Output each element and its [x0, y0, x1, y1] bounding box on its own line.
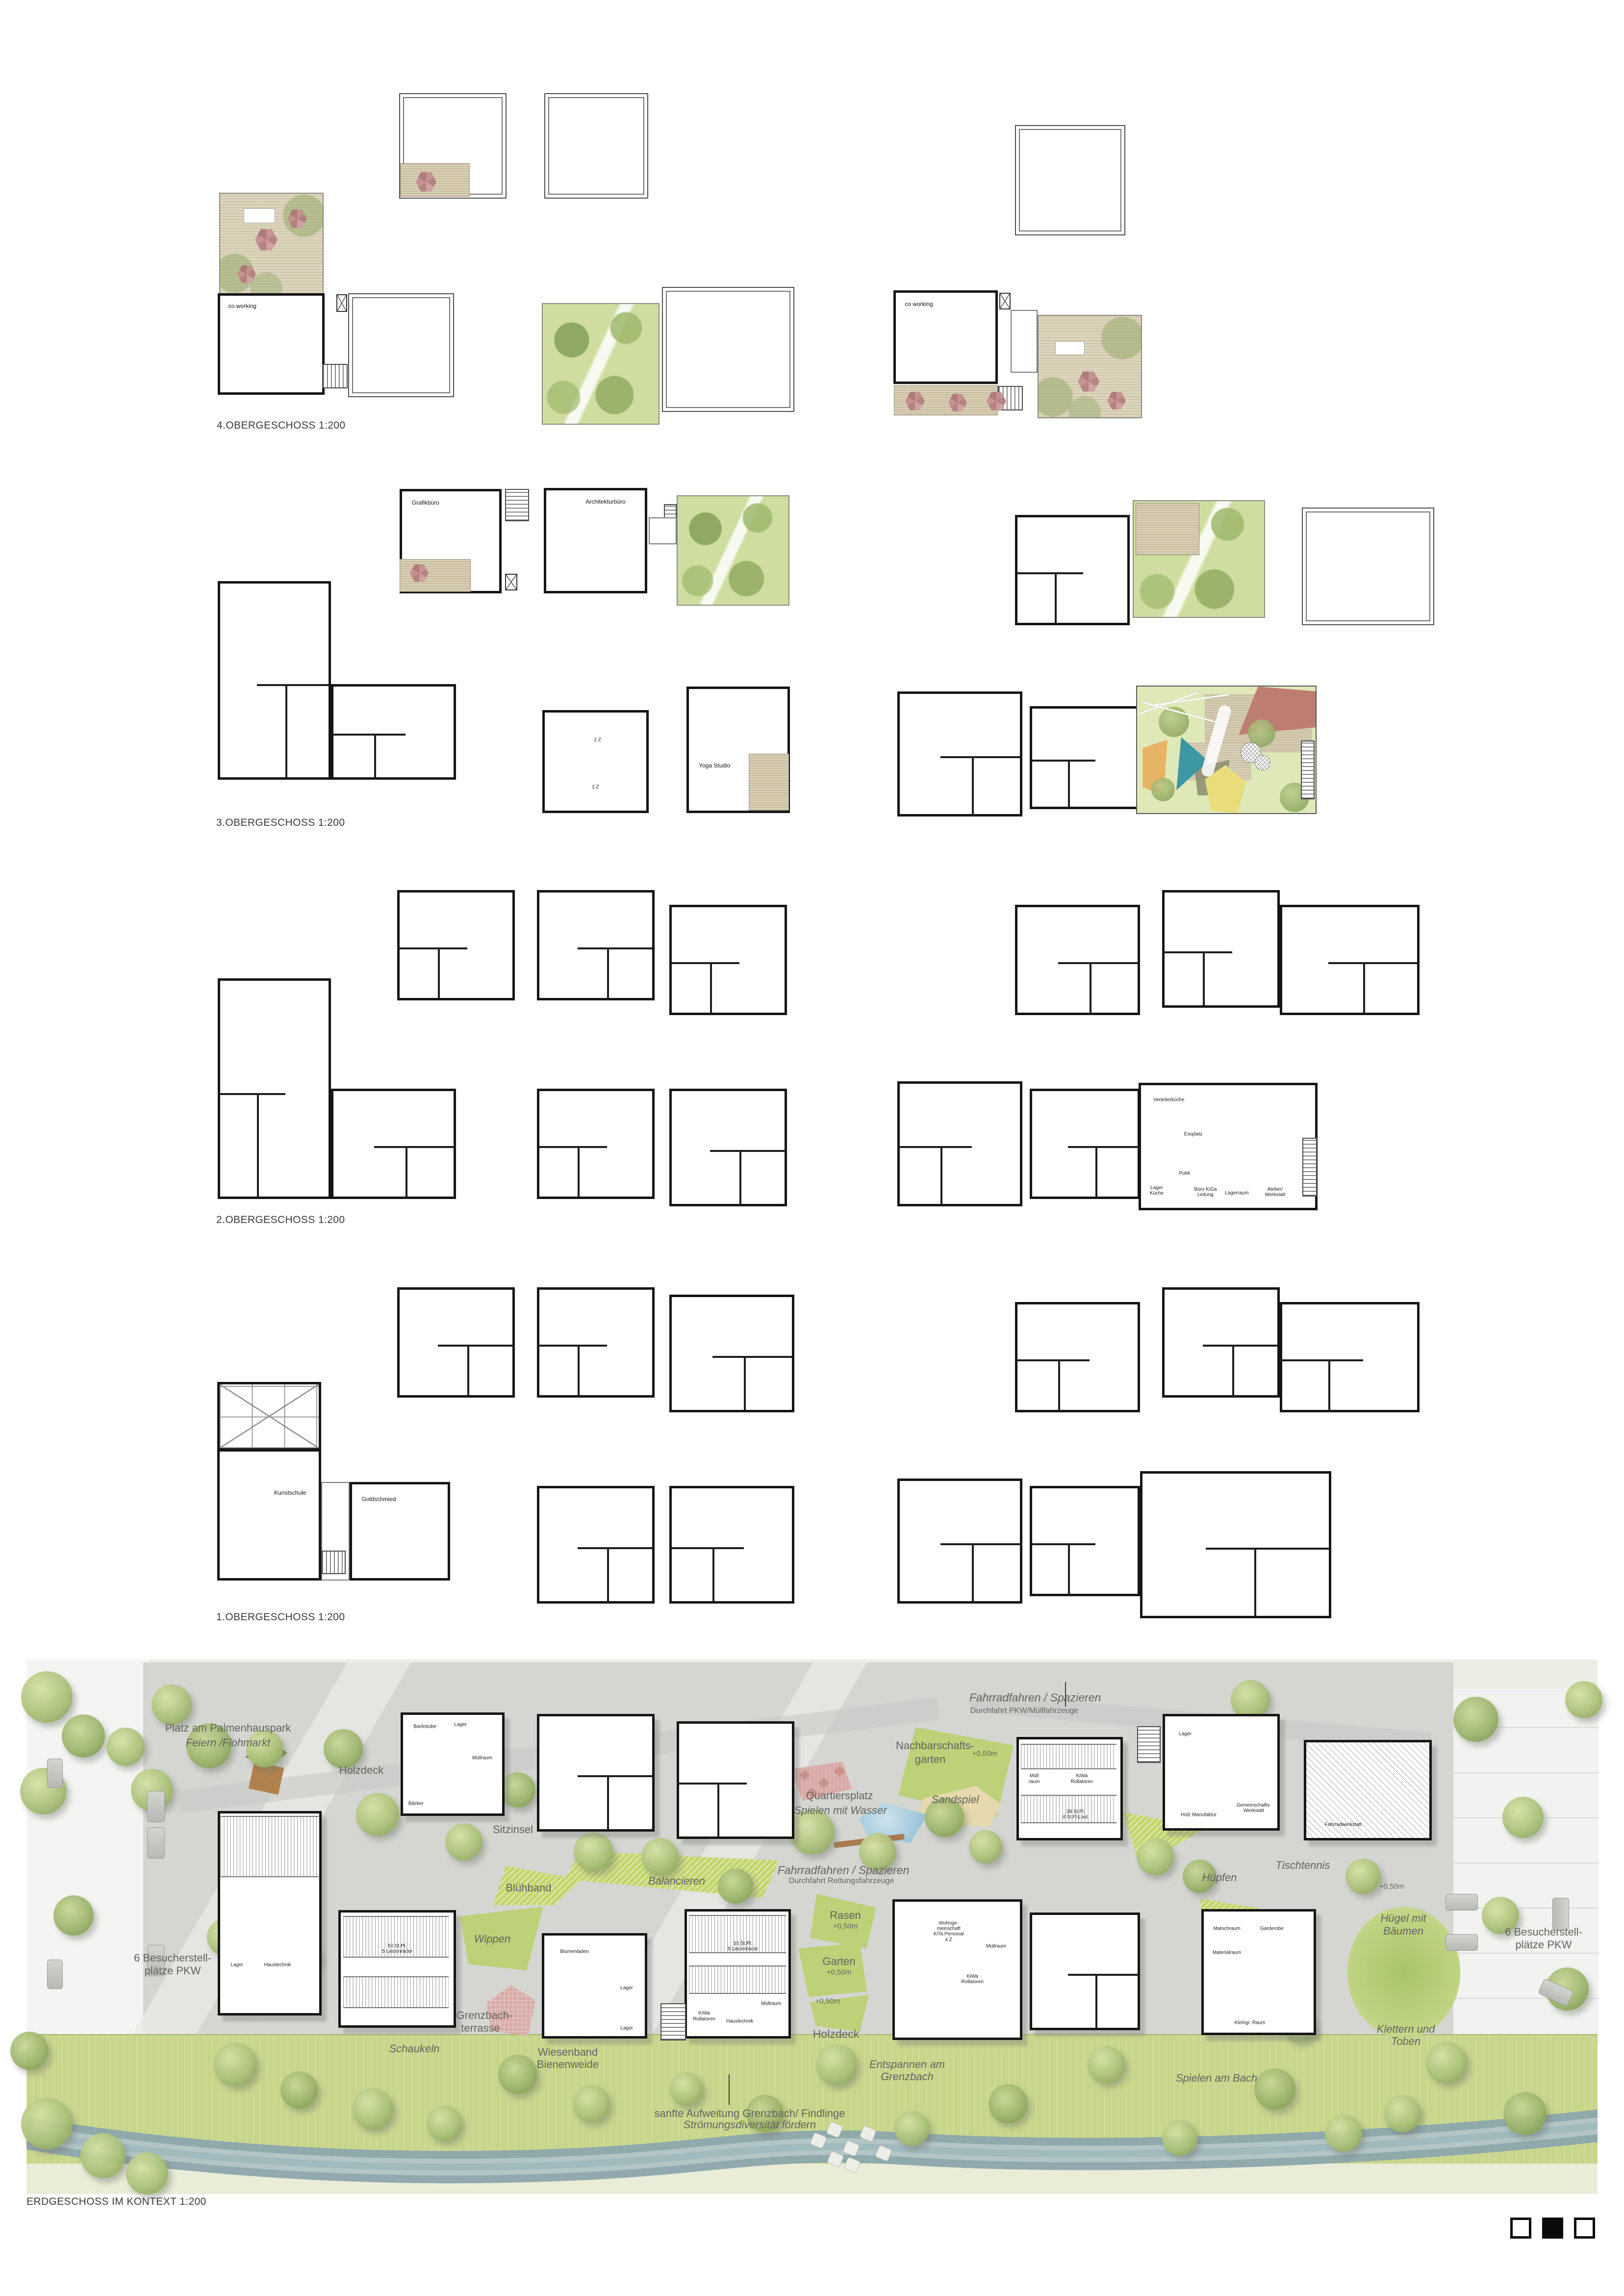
site-annotation: Schaukeln [389, 2042, 440, 2055]
room-label: Lager [620, 2025, 633, 2031]
page-indicator-1[interactable] [1510, 2218, 1531, 2239]
tree [21, 2098, 73, 2149]
garden-block [542, 303, 660, 425]
tree [989, 2084, 1028, 2123]
site-annotation: Spielen am Bach [1176, 2072, 1257, 2085]
floor-plan-block [1162, 1287, 1280, 1398]
site-annotation: Holzdeck [813, 2028, 860, 2041]
terrace-deck [749, 754, 789, 811]
site-annotation: Nachbarschafts- [896, 1739, 974, 1752]
site-annotation: Holzdeck [339, 1764, 383, 1777]
stair [322, 364, 348, 388]
floor-plan-block [218, 581, 331, 780]
interior-wall [1254, 1548, 1256, 1616]
interior-wall [1095, 1146, 1097, 1197]
site-annotation: +0,50m [1379, 1883, 1404, 1891]
tree [1231, 1680, 1270, 1719]
tree [894, 2111, 930, 2146]
site-annotation: +0,50m [827, 1968, 851, 1977]
interior-wall [1058, 1359, 1060, 1410]
interior-wall [1206, 1548, 1329, 1550]
floor-plan-block: Wohnge- meinschaft KiTa Personal 4 ZMüll… [892, 1899, 1022, 2040]
xgrid-block [217, 1382, 321, 1451]
garden-block [677, 495, 789, 606]
site-annotation: Blühband [506, 1882, 552, 1894]
room-label: Lagerraum [1225, 1190, 1248, 1196]
interior-wall [1032, 760, 1095, 762]
interior-wall [940, 1543, 1020, 1545]
interior-wall [1165, 951, 1232, 953]
terrace-deck [400, 559, 471, 592]
site-annotation: Feiern /Flohmarkt [186, 1736, 270, 1749]
floor-plan-block [669, 905, 787, 1015]
interior-wall [374, 734, 376, 777]
interior-wall [220, 1093, 285, 1095]
site-annotation: plätze PKW [1516, 1939, 1572, 1951]
tree [427, 2106, 462, 2141]
tree [1088, 2046, 1125, 2083]
courtyard-tree [1151, 778, 1175, 801]
hatchplan-block: Fahrradwerkstatt [1304, 1740, 1432, 1840]
room-label: KiWa Rollatoren [693, 2011, 715, 2021]
floor-plan-block [897, 691, 1022, 816]
floor-plan-block [537, 1714, 655, 1832]
floor-plan-block [537, 1486, 655, 1604]
tree [324, 1729, 363, 1768]
floor-plan-block [669, 1295, 794, 1412]
page-indicator-3[interactable] [1574, 2218, 1595, 2239]
section-title-eg: ERDGESCHOSS IM KONTEXT 1:200 [26, 2196, 206, 2208]
outline-block [662, 287, 794, 412]
site-annotation: +0,50m [833, 1922, 858, 1931]
tree [106, 1728, 145, 1766]
interior-wall [438, 1345, 512, 1347]
interior-wall [578, 1547, 652, 1549]
interior-wall [1232, 1345, 1234, 1395]
interior-wall [1328, 962, 1418, 964]
room-label: Garderobe [1260, 1926, 1284, 1931]
site-annotation: Balancieren [648, 1875, 705, 1888]
tree [62, 1714, 105, 1758]
corridor-link [649, 517, 677, 544]
section-title-og2: 2.OBERGESCHOSS 1:200 [216, 1214, 345, 1226]
tree [1503, 2092, 1547, 2135]
floor-plan-block [397, 890, 515, 1000]
room-label: Goldschmied [362, 1496, 396, 1503]
room-label: Müllraum [761, 2001, 781, 2006]
room-label: Müll raum [1029, 1773, 1040, 1784]
room-label: Grafikbüro [412, 499, 439, 506]
room-label: Architekturbüro [585, 498, 625, 505]
roof-block [1038, 315, 1142, 418]
room-label: Backstube [413, 1724, 436, 1730]
outline-block [1302, 508, 1434, 625]
interior-wall [1032, 1543, 1095, 1545]
room-label: Bäcker [408, 1801, 424, 1806]
elevator [505, 574, 517, 590]
page-indicator-2[interactable] [1542, 2218, 1563, 2239]
bike-racks [343, 1976, 449, 2008]
site-annotation: Klettern und [1377, 2023, 1435, 2036]
room-label: Kunstschule [274, 1489, 306, 1496]
interior-wall [578, 947, 652, 949]
site-annotation: Entspannen am [869, 2058, 945, 2071]
site-annotation: Bäumen [1383, 1925, 1423, 1938]
floor-plan-block: Architekturbüro [544, 488, 647, 593]
site-annotation: Strömungsdiversität fördern [684, 2118, 816, 2131]
interior-wall [972, 1543, 974, 1601]
room-label: Essplatz [1184, 1131, 1203, 1137]
stair [1137, 1726, 1161, 1763]
interior-wall [1068, 1974, 1138, 1976]
section-title-og1: 1.OBERGESCHOSS 1:200 [216, 1611, 345, 1623]
terrace-deck [1136, 503, 1199, 555]
interior-wall [717, 1783, 719, 1837]
tree [573, 2085, 610, 2122]
tree [816, 2044, 857, 2085]
room-label: Müllraum [986, 1944, 1006, 1949]
tree [80, 2133, 126, 2178]
parked-car [147, 1827, 165, 1859]
interior-wall [400, 947, 467, 949]
interior-wall [1203, 951, 1205, 1005]
interior-wall [1068, 1146, 1138, 1148]
interior-wall [539, 1146, 607, 1148]
floor-plan-block [1015, 1302, 1140, 1412]
floor-plan-block [1280, 905, 1420, 1015]
interior-wall [710, 962, 712, 1013]
outline-block [348, 293, 454, 397]
room-label: Matschraum [1214, 1926, 1241, 1931]
interior-wall [712, 1356, 792, 1358]
site-annotation: Spielen mit Wasser [794, 1804, 887, 1817]
interior-wall [406, 1146, 407, 1197]
stair [660, 2003, 686, 2041]
site-annotation: Sitzinsel [493, 1823, 533, 1836]
floor-plan-block [1162, 890, 1280, 1008]
floor-plan-block [1280, 1302, 1420, 1412]
interior-wall [1017, 1359, 1090, 1361]
interior-wall [900, 1146, 972, 1148]
floor-plan-block [897, 1479, 1022, 1604]
site-annotation: Wippen [474, 1933, 510, 1945]
room-label: Yoga Studio [699, 762, 730, 769]
site-annotation: terrasse [461, 2022, 500, 2035]
site-annotation: Grenzbach [881, 2070, 934, 2083]
room-label: Müllraum [472, 1756, 492, 1761]
elevator [999, 293, 1011, 309]
floor-plan-block [537, 1089, 655, 1199]
site-annotation: +0,50m [972, 1750, 997, 1758]
floor-plan-block [897, 1081, 1022, 1206]
floor-plan-block: Kunstschule [217, 1449, 321, 1581]
floor-plan-block [1030, 1089, 1140, 1199]
interior-wall [607, 947, 609, 998]
room-label: Holz Manufaktur [1181, 1812, 1217, 1817]
room-label: PuMi [1179, 1171, 1190, 1176]
interior-wall [1363, 962, 1365, 1013]
interior-wall [607, 1775, 609, 1829]
stair [1302, 1138, 1317, 1197]
site-annotation: Platz am Palmenhauspark [165, 1722, 291, 1735]
bike-racks [689, 1965, 786, 1994]
floor-plan-block [331, 684, 456, 780]
site-annotation: Wiesenband [538, 2046, 598, 2059]
interior-wall [679, 1783, 747, 1785]
site-annotation: 6 Besucherstell- [1505, 1926, 1582, 1939]
tree [969, 1830, 1002, 1863]
tree [152, 1684, 192, 1725]
site-annotation: Garten [822, 1955, 855, 1968]
interior-wall [1068, 760, 1070, 807]
stair [321, 1551, 346, 1574]
tree [10, 2032, 49, 2070]
floor-plan-block: 2 Z2 Z [542, 710, 649, 813]
floor-plan-block: BackstubeLagerMüllraumBäcker [401, 1712, 505, 1816]
interior-wall [539, 1345, 607, 1347]
interior-wall [1068, 1543, 1070, 1594]
floor-plan-block: MatschraumGarderobeMaterialraumKleingr. … [1201, 1909, 1316, 2035]
site-annotation: Durchfahrt PKW/Müllfahrzeuge [970, 1707, 1079, 1715]
parked-car [1446, 1934, 1478, 1951]
leader-line [1065, 1682, 1066, 1707]
site-annotation: Hügel mit [1381, 1912, 1426, 1925]
section-title-og3: 3.OBERGESCHOSS 1:200 [216, 817, 345, 829]
tree [21, 1671, 73, 1723]
interior-wall [607, 1547, 609, 1601]
site-annotation: Bienenweide [537, 2058, 599, 2071]
tree [1254, 2068, 1295, 2110]
floor-plan-block [537, 890, 655, 1000]
site-annotation: Toben [1391, 2035, 1421, 2048]
interior-wall [972, 756, 974, 814]
interior-wall [1090, 962, 1091, 1013]
tree [53, 1895, 94, 1936]
floor-plan-block [1015, 515, 1130, 625]
interior-wall [1095, 1974, 1097, 2028]
room-label: Blumenladen [560, 1949, 588, 1954]
tree [670, 2072, 703, 2106]
bike-racks [1021, 1795, 1116, 1823]
room-label: Lager [231, 1963, 244, 1968]
room-label: Haustechnik [726, 2018, 753, 2024]
floor-plan-block: VerteilerkücheEssplatzLager KüchePuMiBür… [1139, 1083, 1318, 1210]
floor-plan-block: co working [893, 290, 998, 384]
section-title-og4: 4.OBERGESCHOSS 1:200 [217, 420, 345, 432]
interior-wall [710, 1150, 785, 1152]
interior-wall [744, 1356, 746, 1410]
tree [498, 2055, 537, 2094]
site-annotation: +0,50m [815, 1997, 840, 2006]
site-annotation: Durchfahrt Rettungsfahrzeuge [789, 1877, 894, 1886]
interior-wall [333, 734, 406, 736]
floor-plan-block [331, 1089, 456, 1199]
tree [1137, 1838, 1174, 1875]
floor-plan-block: Goldschmied [350, 1482, 450, 1581]
interior-wall [1328, 1359, 1330, 1410]
tree [1325, 2115, 1362, 2152]
floor-plan-block [1030, 706, 1140, 809]
interior-wall [712, 1547, 714, 1601]
court-block [1136, 686, 1317, 814]
parked-car [147, 1791, 165, 1822]
room-label: Büro KiGa Leitung [1194, 1186, 1217, 1197]
floor-plan-block [537, 1287, 655, 1398]
interior-wall [285, 684, 287, 777]
floor-plan-block: co working [218, 293, 325, 395]
floor-plan-block [397, 1287, 515, 1398]
terrace-table [244, 208, 275, 223]
tree [1345, 1859, 1381, 1894]
floor-plan-block [218, 978, 331, 1199]
interior-wall [672, 1547, 744, 1549]
floor-plan-block [669, 1486, 794, 1604]
room-label: co working [228, 303, 256, 309]
room-label: KiWa Rollatoren [961, 1974, 984, 1985]
room-label: Haustechnik [264, 1963, 291, 1968]
stair [505, 489, 529, 521]
floor-plan-block [1015, 905, 1140, 1015]
interior-wall [1203, 1345, 1277, 1347]
room-label: Atelier/ Werkstatt [1265, 1186, 1285, 1197]
interior-wall [1282, 1359, 1363, 1361]
interior-wall [940, 1146, 942, 1204]
site-annotation: plätze PKW [145, 1964, 201, 1977]
tree [352, 2088, 393, 2129]
bike-racks [343, 1916, 449, 1958]
leader-line [729, 2074, 730, 2105]
tree [641, 1838, 679, 1875]
interior-wall [257, 684, 329, 686]
interior-wall [739, 1150, 741, 1204]
outline-block [544, 93, 648, 199]
elevator [336, 294, 347, 312]
interior-wall [438, 947, 440, 998]
interior-wall [578, 1345, 580, 1395]
interior-wall [257, 1093, 259, 1197]
room-label: Lager Küche [1150, 1185, 1164, 1196]
interior-wall [1058, 962, 1138, 964]
floor-plan-block [1140, 1471, 1331, 1618]
site-annotation: 6 Besucherstell- [134, 1952, 211, 1964]
parked-car [47, 1960, 63, 1989]
room-label: KiWa Rollatoren [1071, 1773, 1093, 1784]
interior-wall [1055, 572, 1057, 623]
climbing-net [1255, 755, 1270, 770]
tree [356, 1793, 399, 1836]
site-annotation: Rasen [830, 1909, 861, 1922]
floor-plan-block: LagerHolz ManufakturGemeinschafts- Werks… [1163, 1714, 1280, 1831]
room-label: co working [905, 301, 933, 307]
tree [1565, 1681, 1602, 1718]
interior-wall [467, 1345, 469, 1395]
tree [1426, 2042, 1467, 2083]
tree [1502, 1797, 1544, 1838]
room-label: Gemeinschafts- Werkstatt [1237, 1803, 1271, 1813]
terrace-table [1055, 341, 1085, 355]
room-label: Lager [620, 1985, 633, 1990]
room-label: Lager [1179, 1732, 1192, 1737]
tree [126, 2152, 168, 2194]
tree [1453, 1697, 1498, 1742]
room-label: Lager [454, 1722, 467, 1728]
floor-plan-block [669, 1089, 787, 1206]
tree [1384, 2095, 1421, 2132]
tree [574, 1832, 613, 1871]
outline-block [1015, 125, 1125, 235]
interior-wall [374, 1146, 454, 1148]
floor-plan-block [677, 1721, 794, 1839]
room-label: Verteilerküche [1153, 1097, 1184, 1102]
room-label: Fahrradwerkstatt [1325, 1822, 1362, 1827]
site-annotation: Quartiersplatz [806, 1789, 873, 1802]
corridor-link [1011, 310, 1038, 373]
bike-racks [1021, 1744, 1116, 1769]
room-label: Wohnge- meinschaft KiTa Personal 4 Z [934, 1921, 964, 1943]
site-annotation: Tischtennis [1275, 1859, 1330, 1872]
stair [1301, 740, 1315, 799]
parked-car [1446, 1894, 1478, 1911]
tree [214, 2043, 257, 2086]
room-label: Kleingr. Raum [1235, 2020, 1266, 2026]
tree [718, 1868, 753, 1904]
tree [280, 2071, 318, 2109]
floor-plan-block [1030, 1486, 1140, 1596]
floor-plan-block [1030, 1913, 1140, 2030]
bike-racks [689, 1915, 786, 1953]
bike-racks [221, 1816, 319, 1877]
site-annotation: Grenzbach- [457, 2009, 513, 2022]
interior-wall [578, 1146, 580, 1197]
tree [445, 1823, 482, 1861]
room-label: Materialraum [1213, 1950, 1241, 1955]
interior-wall [672, 962, 739, 964]
room-label: 2 Z [594, 737, 601, 742]
plan-sheet: co workingco workingGrafikbüroArchitektu… [0, 0, 1624, 2296]
interior-wall [578, 1775, 652, 1777]
site-annotation: Fahrradfahren / Spazieren [969, 1691, 1101, 1705]
floor-plan-block: BlumenladenLagerLager [542, 1933, 647, 2039]
room-label: 2 Z [592, 784, 599, 790]
site-annotation: Hüpfen [1202, 1871, 1237, 1884]
interior-wall [1017, 572, 1083, 574]
parked-car [47, 1759, 63, 1788]
site-annotation: Fahrradfahren / Spazieren [778, 1864, 910, 1877]
interior-wall [940, 756, 1020, 758]
site-annotation: garten [915, 1753, 945, 1766]
tree [1162, 2120, 1197, 2156]
site-annotation: Sandspiel [932, 1793, 979, 1806]
